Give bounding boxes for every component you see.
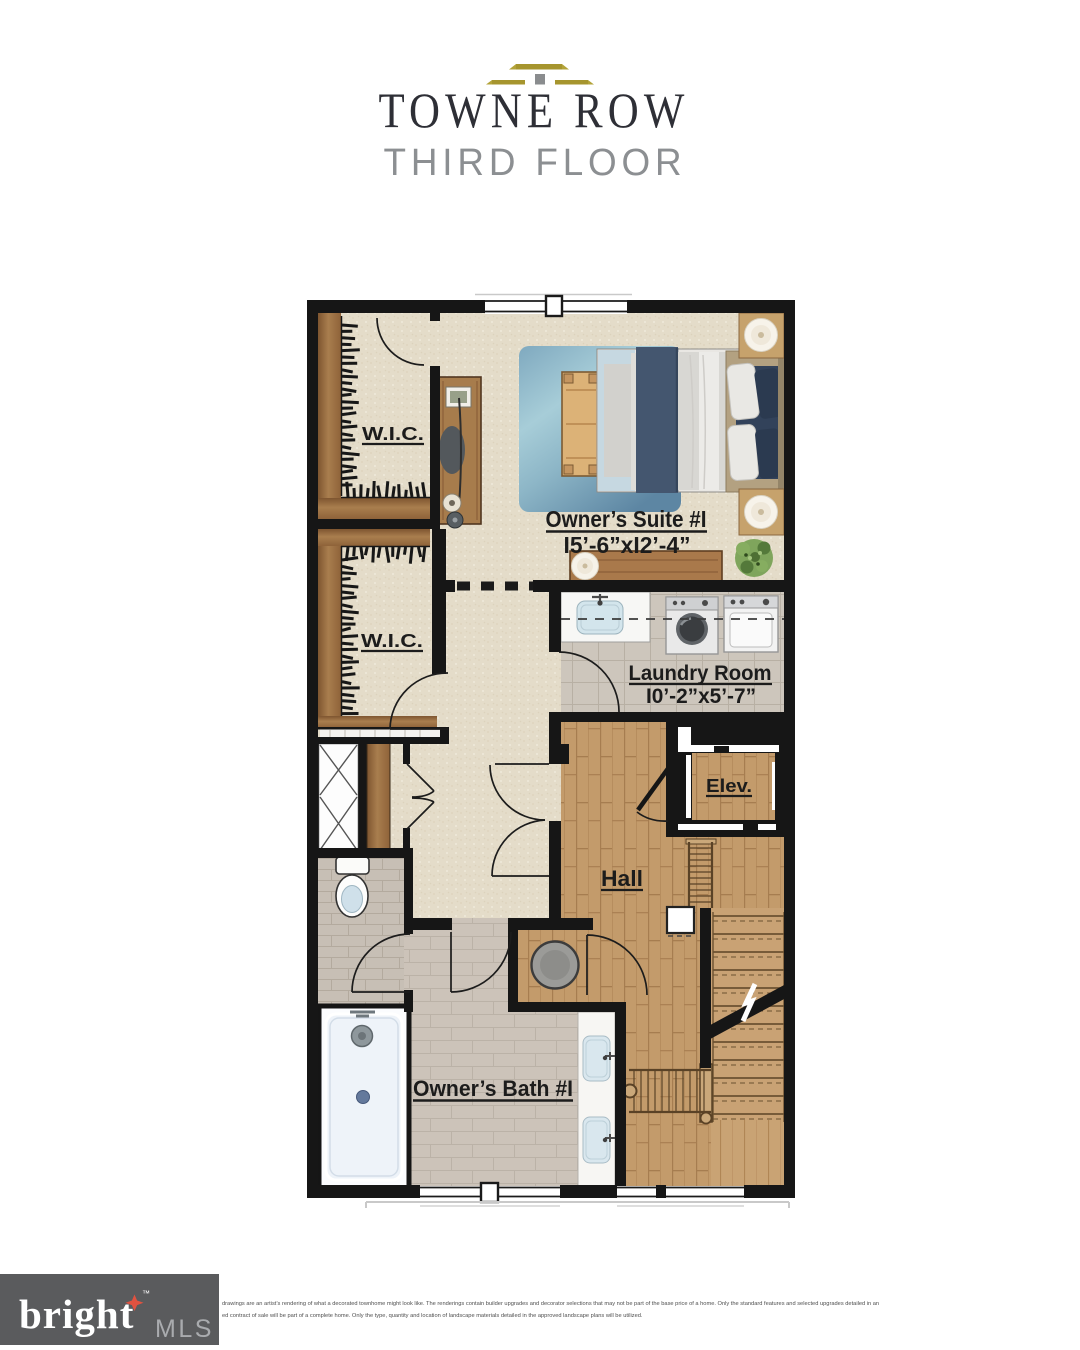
svg-text:W.I.C.: W.I.C. — [362, 424, 424, 444]
svg-text:drawings are an artist’s rende: drawings are an artist’s rendering of wh… — [222, 1301, 879, 1307]
svg-text:Laundry Room: Laundry Room — [629, 662, 772, 685]
svg-text:MLS: MLS — [155, 1315, 214, 1343]
svg-text:Owner’s Bath #I: Owner’s Bath #I — [413, 1076, 573, 1101]
svg-text:Owner’s Suite #I: Owner’s Suite #I — [546, 506, 707, 532]
svg-text:bright: bright — [19, 1291, 134, 1337]
svg-text:™: ™ — [142, 1289, 150, 1298]
svg-text:TOWNE ROW: TOWNE ROW — [379, 82, 690, 138]
svg-text:THIRD FLOOR: THIRD FLOOR — [384, 142, 687, 184]
svg-text:Elev.: Elev. — [706, 776, 752, 796]
svg-text:W.I.C.: W.I.C. — [361, 631, 423, 651]
svg-text:I0’-2”x5’-7”: I0’-2”x5’-7” — [646, 685, 756, 708]
svg-text:Hall: Hall — [601, 866, 643, 891]
svg-text:I5’-6”xI2’-4”: I5’-6”xI2’-4” — [564, 532, 691, 558]
svg-text:ed contract of sale will be pa: ed contract of sale will be part of a co… — [222, 1313, 643, 1319]
